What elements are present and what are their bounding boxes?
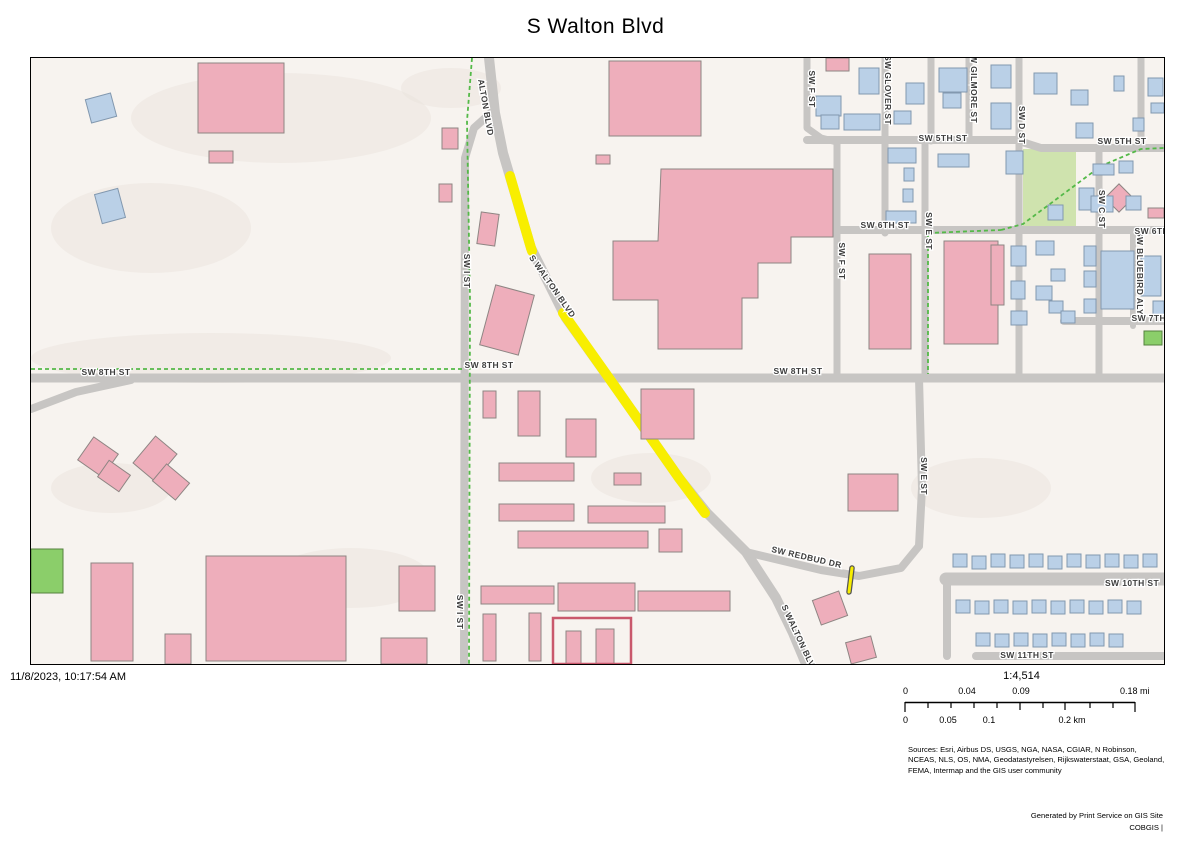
building [1052,633,1066,646]
building [859,68,879,94]
building [1070,600,1084,613]
building [976,633,990,646]
building [529,613,541,661]
building [442,128,458,149]
building [1126,196,1141,210]
street-label: SW 5TH ST [919,133,968,143]
building [991,245,1004,305]
building [821,115,839,129]
building [1119,161,1133,173]
building [903,189,913,202]
org-text: COBGIS | [900,822,1163,834]
building [1014,633,1028,646]
street-label: SW GLOVER ST [883,58,893,125]
street-label: SW C ST [1097,190,1107,229]
building [1071,634,1085,647]
building [1051,269,1065,281]
building [991,103,1011,129]
building [944,241,998,344]
scale-ratio: 1:4,514 [903,670,1140,682]
print-page: { "title": "S Walton Blvd", "timestamp":… [0,0,1191,842]
building [209,151,233,163]
building [483,391,496,418]
map-frame: ALTON BLVDS WALTON BLVDS WALTON BLVDSW I… [30,57,1165,665]
building [483,614,496,661]
building [518,531,648,548]
street-label: SW 6TH ST [1135,226,1164,236]
building [1093,164,1114,175]
street-label: SW E ST [924,212,934,250]
street-label: SW 6TH ST [861,220,910,230]
building [991,65,1011,88]
street-label: SW 8TH ST [82,367,131,377]
building [1011,246,1026,266]
building [1084,246,1096,266]
building [1006,151,1023,174]
scale-bar-ticks [905,702,1135,712]
building [826,58,849,71]
street-label: SW 5TH ST [1098,136,1147,146]
building [1144,331,1162,345]
building [816,96,841,116]
building [1114,76,1124,91]
building [165,634,191,664]
building [1010,555,1024,568]
scale-km-2: 0.1 [969,715,1009,725]
building [399,566,435,611]
building [848,474,898,511]
building [614,473,641,485]
building [1033,634,1047,647]
street-label: SW GILMORE ST [969,58,979,123]
building [904,168,914,181]
building [659,529,682,552]
building [975,601,989,614]
building [1048,205,1063,220]
building [1090,633,1104,646]
building [1151,103,1164,113]
building [499,504,574,521]
building [558,583,635,611]
building [439,184,452,202]
street-label: SW F ST [807,70,817,108]
street-label: SW 8TH ST [774,366,823,376]
building [1124,555,1138,568]
street-label: SW E ST [919,457,929,495]
scale-bar [903,699,1140,714]
building [888,148,916,163]
street-label: SW 8TH ST [465,360,514,370]
building [991,554,1005,567]
building [1148,78,1163,96]
generated-by-text: Generated by Print Service on GIS Site [900,810,1163,822]
building [995,634,1009,647]
street-label: SW D ST [1017,106,1027,145]
building [894,111,911,124]
building [31,549,63,593]
building [1067,554,1081,567]
building [198,63,284,133]
building [1034,73,1057,94]
map-svg: ALTON BLVDS WALTON BLVDS WALTON BLVDSW I… [31,58,1164,664]
timestamp: 11/8/2023, 10:17:54 AM [10,671,126,683]
building [1032,600,1046,613]
street-label: SW 7TH ST [1132,313,1164,323]
building [1011,281,1025,299]
building [1013,601,1027,614]
scale-mi-1: 0.04 [947,686,987,696]
building [1133,118,1144,131]
street-label: SW F ST [837,242,847,280]
building [518,391,540,436]
building [1108,600,1122,613]
building [206,556,346,661]
hillshade-patch [51,183,251,273]
scale-km-3: 0.2 km [1047,715,1097,725]
building [596,629,614,664]
building [1089,601,1103,614]
building [481,586,554,604]
building [1071,90,1088,105]
building [939,68,967,92]
building [1048,556,1062,569]
scale-mi-2: 0.09 [1001,686,1041,696]
building [588,506,665,523]
street-label: SW I ST [462,254,472,289]
building [994,600,1008,613]
building [943,93,961,108]
building [1051,601,1065,614]
generated-footer: Generated by Print Service on GIS Site C… [900,810,1163,834]
scale-mi-3: 0.18 mi [1120,686,1150,696]
building [1029,554,1043,567]
sources-attribution: Sources: Esri, Airbus DS, USGS, NGA, NAS… [908,745,1166,776]
scale-km-0: 0 [903,715,908,725]
building [869,254,911,349]
building [956,600,970,613]
building [381,638,427,664]
scale-mi-0: 0 [903,686,908,696]
street-label: SW 11TH ST [1000,650,1054,660]
building [1109,634,1123,647]
building [566,419,596,457]
street-label: SW 10TH ST [1105,578,1159,588]
building [972,556,986,569]
building [1105,554,1119,567]
building [1084,299,1096,313]
building [1143,554,1157,567]
building [566,631,581,664]
building [638,591,730,611]
page-title: S Walton Blvd [0,15,1191,39]
building [938,154,969,167]
building [477,212,499,246]
building [1086,555,1100,568]
street-label: SW I ST [455,595,465,630]
street-label: SW BLUEBIRD ALY [1135,231,1145,315]
building [1036,286,1052,300]
building [906,83,924,104]
building [1076,123,1093,138]
building [1084,271,1096,287]
building [609,61,701,136]
building [1061,311,1075,323]
building [953,554,967,567]
building [91,563,133,661]
building [641,389,694,439]
hillshade-patch [911,458,1051,518]
building [1101,251,1134,309]
building [499,463,574,481]
building [844,114,880,130]
building [1011,311,1027,325]
scale-km-1: 0.05 [928,715,968,725]
building [596,155,610,164]
building [1148,208,1164,218]
building [1036,241,1054,255]
building [1127,601,1141,614]
